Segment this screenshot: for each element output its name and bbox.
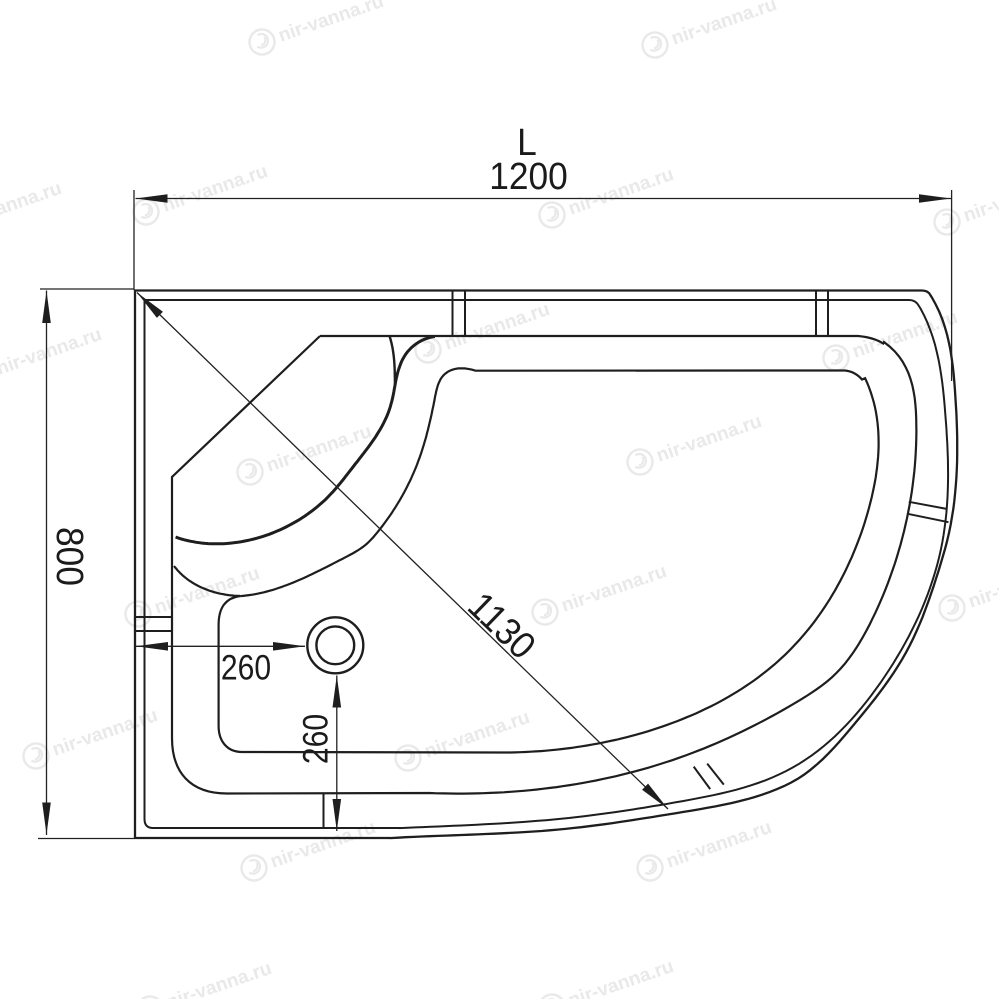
svg-text:260: 260: [221, 647, 271, 687]
svg-text:800: 800: [49, 527, 91, 586]
svg-text:1200: 1200: [489, 155, 568, 197]
svg-text:260: 260: [295, 714, 335, 764]
